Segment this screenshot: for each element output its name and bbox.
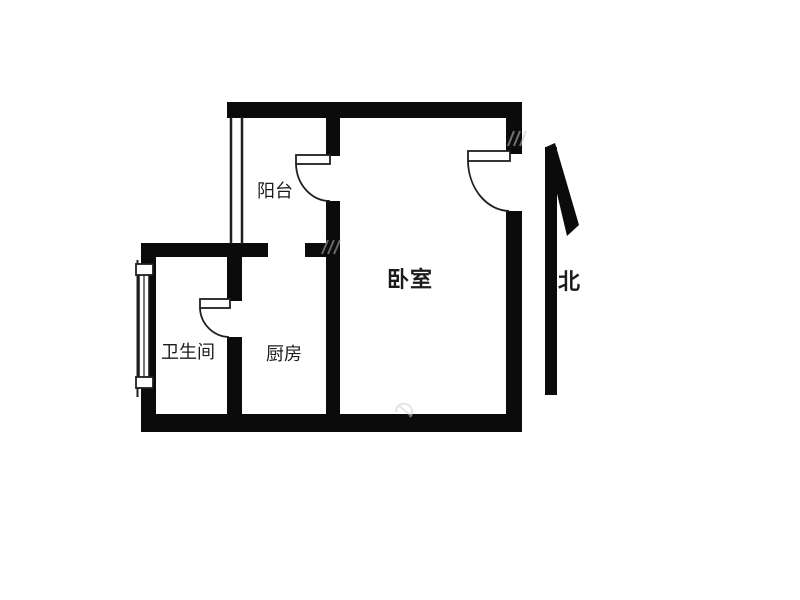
door-leaf	[200, 299, 230, 308]
room-label-balcony: 阳台	[257, 182, 293, 200]
door-bathroom	[200, 299, 230, 337]
wall-main-vertical-lower	[326, 201, 340, 414]
door-swing-arc	[200, 308, 229, 337]
bathroom-window-cap-bottom	[136, 377, 153, 388]
door-leaf	[296, 155, 330, 164]
door-leaf	[468, 151, 510, 161]
wall-bottom	[141, 414, 522, 432]
bathroom-window-cap-top	[136, 264, 153, 275]
room-label-bedroom: 卧室	[387, 269, 433, 291]
room-label-bathroom: 卫生间	[161, 343, 215, 361]
floorplan-drawing	[0, 0, 800, 600]
balcony-window	[231, 117, 242, 244]
wall-top	[227, 102, 522, 118]
floorplan-canvas: 阳台 卧室 卫生间 厨房 北	[0, 0, 800, 600]
wall-right-lower	[506, 211, 522, 432]
wall-bathroom-top	[141, 243, 268, 257]
wall-bath-kitchen-upper	[227, 257, 242, 301]
wall-right-upper	[506, 102, 522, 154]
walls	[141, 102, 522, 432]
wall-main-vertical-upper	[326, 117, 340, 156]
door-swing-arc	[468, 161, 509, 211]
wall-bath-kitchen-lower	[227, 337, 242, 414]
room-label-kitchen: 厨房	[266, 345, 302, 363]
door-balcony-to-bedroom	[296, 155, 330, 201]
door-swing-arc	[296, 164, 330, 201]
door-bedroom-entry	[468, 151, 510, 211]
compass-north-label: 北	[558, 271, 580, 293]
